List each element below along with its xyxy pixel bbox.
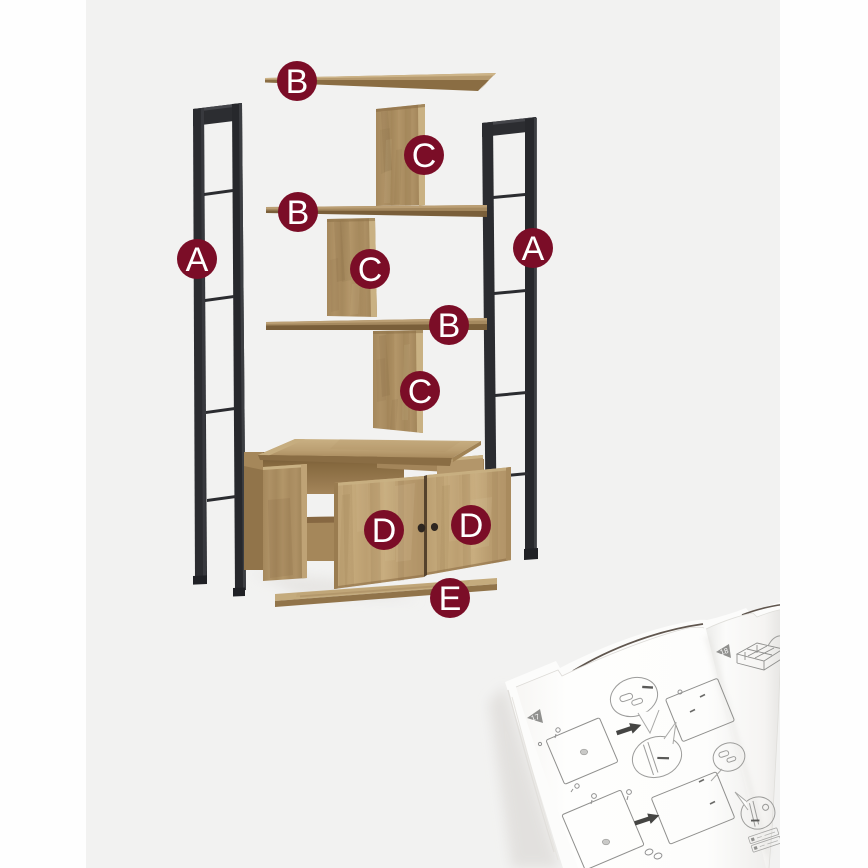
svg-text:B: B [438, 307, 461, 345]
svg-text:B: B [286, 63, 309, 101]
svg-text:D: D [459, 507, 484, 545]
svg-text:C: C [412, 137, 437, 175]
svg-text:D: D [372, 512, 397, 550]
svg-text:B: B [287, 194, 310, 232]
svg-text:C: C [358, 251, 383, 289]
svg-text:A: A [522, 230, 545, 268]
svg-text:A: A [186, 241, 209, 279]
svg-text:E: E [439, 580, 462, 618]
svg-text:C: C [408, 373, 433, 411]
